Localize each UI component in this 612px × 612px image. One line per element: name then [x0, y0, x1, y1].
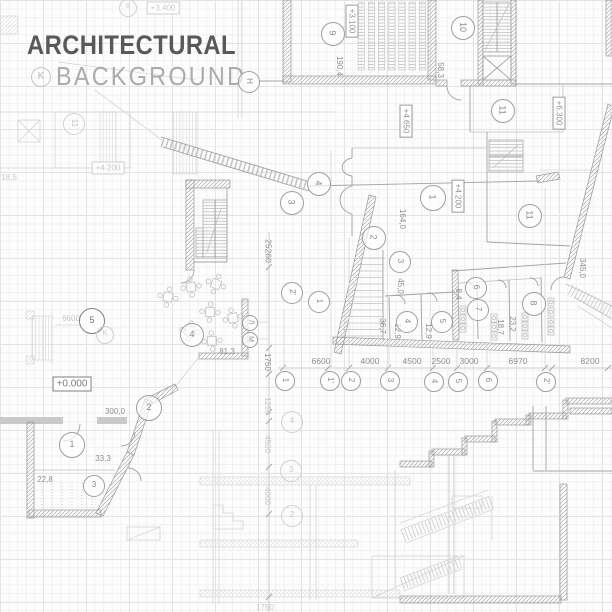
- axis-6-label: 6: [480, 378, 496, 382]
- dim-22-8: 22,8: [37, 476, 53, 484]
- bubble-8-top-label: 8: [126, 0, 130, 14]
- section-3-label: 3: [289, 461, 293, 479]
- dim-3000: 3000: [460, 357, 479, 366]
- dim-25260: 25260: [264, 239, 273, 263]
- dim-190-4: 190,4: [335, 56, 343, 76]
- bubble-h-label: H: [240, 78, 258, 84]
- axis-4: 4: [424, 372, 444, 392]
- left-stair-block: [181, 180, 230, 283]
- dim-8200: 8200: [581, 357, 600, 366]
- bubble-10-label: 10: [453, 22, 473, 32]
- elevation-4200-faint: +4.200: [92, 162, 125, 175]
- axis-1p: 1': [320, 371, 340, 391]
- dim-1750-section: 1750: [256, 604, 274, 612]
- bubble-2-hall-label: 2: [364, 234, 384, 239]
- dim-164-0: 164,0: [398, 209, 406, 229]
- dim-300-0: 300,0: [105, 408, 125, 416]
- dim-4000: 4000: [361, 357, 380, 366]
- bubble-4-room: 4: [396, 311, 418, 333]
- bubble-11-a-label: 11: [493, 105, 513, 114]
- dim-4500-section: 4500: [263, 435, 271, 453]
- dim-2500: 2500: [432, 357, 451, 366]
- bubble-2-hall: 2: [362, 226, 386, 250]
- bubble-2-room-label: 2: [146, 396, 151, 418]
- auditorium-block: [258, 0, 516, 100]
- bubble-1-room-bl-label: 1: [69, 433, 74, 455]
- axis-1-label: 1: [277, 378, 293, 382]
- stepped-section: [400, 398, 612, 603]
- bubble-7-room-label: 7: [469, 307, 487, 311]
- dim-6970: 6970: [509, 357, 528, 366]
- section-4-label: 4: [290, 412, 294, 430]
- bubble-11-faint-label: 11: [65, 119, 83, 127]
- bubble-3-ramp-label: 3: [282, 199, 302, 204]
- dim-345-0: 345,0: [578, 258, 586, 278]
- page-subtitle: BACKGROUND: [56, 61, 246, 92]
- k-badge: K: [31, 67, 51, 87]
- bubble-1-axis-diag-label: 1: [310, 299, 328, 303]
- bubble-k-small-label: K: [103, 327, 108, 341]
- axis-5: 5: [448, 372, 468, 392]
- dim-4500: 4500: [403, 357, 422, 366]
- dim-45-0: 45,0: [396, 278, 404, 294]
- bubble-3-ramp: 3: [280, 191, 304, 215]
- bubble-11-a: 11: [491, 99, 515, 123]
- axis-1p-label: 1': [322, 377, 338, 383]
- elevation-3400: +3.400: [147, 2, 180, 15]
- bubble-7-room: 7: [467, 299, 489, 321]
- section-4: 4: [281, 411, 303, 433]
- bubble-3-stair-label: 3: [391, 259, 409, 263]
- axis-5-label: 5: [450, 379, 466, 383]
- bubble-8-room: 8: [522, 292, 546, 316]
- axis-4-label: 4: [426, 379, 442, 383]
- dim-36-7: 36,7: [378, 318, 386, 334]
- dim-4000-section: 4000: [263, 487, 271, 505]
- right-rooms: [487, 104, 612, 328]
- axis-3-label: 3: [382, 378, 398, 382]
- bubble-5-room: 5: [431, 311, 453, 333]
- bubble-4-ramp-label: 4: [309, 180, 329, 185]
- dim-18-7: 18,7: [496, 319, 504, 335]
- bubble-5-room-label: 5: [433, 319, 451, 323]
- bubble-2p-axis: 2': [281, 282, 303, 304]
- axis-3: 3: [380, 371, 400, 391]
- elevation-4200: +4.200: [452, 180, 465, 213]
- bubble-9: 9: [321, 22, 345, 46]
- section-2: 2: [281, 505, 303, 527]
- axis-6: 6: [478, 371, 498, 391]
- dim-18-5: 18,5: [1, 174, 17, 182]
- dim-23-2: 23,2: [508, 316, 516, 332]
- dim-1250-section: 1250: [263, 397, 271, 415]
- bubble-1-room-bl: 1: [59, 432, 85, 458]
- dim-6600-faint: 6600: [62, 315, 80, 323]
- bubble-6-room-label: 6: [467, 285, 485, 289]
- axis-2p: 2': [536, 372, 556, 392]
- dim-81-3: 81,3: [219, 348, 235, 356]
- bubble-l-axis-label: Л: [244, 320, 256, 325]
- axis-2-label: 2: [343, 378, 359, 382]
- bubble-m-axis-label: М: [244, 336, 256, 342]
- page-title: ARCHITECTURAL: [27, 30, 236, 61]
- elevation-0000: +0.000: [53, 377, 92, 392]
- bubble-4-tables: 4: [180, 323, 204, 347]
- bubble-3-stair: 3: [389, 251, 411, 273]
- bubble-2-room: 2: [136, 395, 162, 421]
- axis-1: 1: [275, 371, 295, 391]
- axis-2: 2: [341, 371, 361, 391]
- bubble-9-label: 9: [323, 30, 343, 35]
- dim-58-3: 58,3: [436, 62, 444, 78]
- bubble-3-room-bl: 3: [83, 475, 105, 497]
- dim-6600: 6600: [312, 357, 331, 366]
- bubble-l-axis: Л: [242, 315, 258, 331]
- elevation-4650: +4.650: [400, 105, 413, 138]
- bubble-6-room: 6: [465, 277, 487, 299]
- elevation-3100: +3.100: [346, 5, 359, 38]
- bubble-4-tables-label: 4: [189, 324, 194, 344]
- dim-1750: 1750: [263, 353, 271, 371]
- section-3: 3: [280, 460, 302, 482]
- section-2-label: 2: [290, 506, 294, 524]
- bubble-1-axis-diag: 1: [308, 291, 330, 313]
- axis-2p-label: 2': [538, 378, 554, 384]
- elevation-6300: +6.300: [553, 97, 566, 130]
- bubble-k-small: K: [96, 326, 114, 344]
- bubble-8-room-label: 8: [524, 300, 544, 305]
- architectural-background-canvas: ARCHITECTURAL BACKGROUND K +3.100190,4+3…: [0, 0, 612, 612]
- bubble-10: 10: [451, 16, 475, 40]
- dim-33-3: 33,3: [95, 455, 111, 463]
- bubble-h: H: [238, 71, 260, 93]
- bubble-4-ramp: 4: [307, 172, 331, 196]
- bubble-3-room-bl-label: 3: [92, 476, 96, 494]
- bubble-11-b-label: 11: [520, 210, 540, 219]
- bubble-11-b: 11: [518, 204, 542, 228]
- bubble-11-faint: 11: [63, 113, 85, 135]
- bubble-4-room-label: 4: [398, 319, 416, 323]
- bubble-m-axis: М: [242, 332, 258, 348]
- bubble-1-room: 1: [420, 185, 446, 211]
- dim-8-4: 8,4: [454, 288, 462, 299]
- bubble-5-dark-label: 5: [89, 309, 94, 331]
- bubble-2p-axis-label: 2': [283, 289, 301, 295]
- bubble-1-room-label: 1: [422, 194, 444, 199]
